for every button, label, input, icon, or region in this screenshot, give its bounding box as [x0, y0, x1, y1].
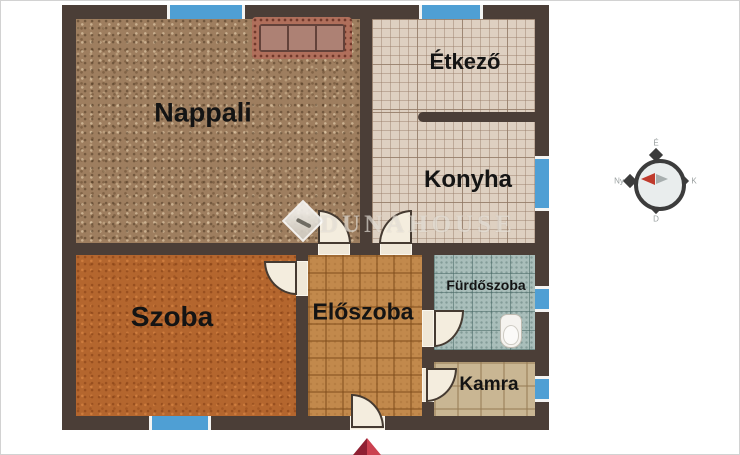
room-floor-szoba — [76, 255, 296, 416]
compass-circle — [634, 159, 686, 211]
sofa-seat — [259, 24, 345, 52]
toilet-icon — [500, 314, 522, 348]
wall-middle-horizontal — [76, 243, 535, 255]
wall-etkezo-konyha — [418, 112, 535, 122]
doorway-konyha-eloszoba — [380, 243, 412, 255]
wall-outer-right — [535, 5, 549, 430]
compass-north-label: É — [653, 139, 658, 148]
doorway-szoba-eloszoba — [296, 261, 308, 296]
compass-needle-tail — [656, 174, 668, 184]
entrance-arrow-icon — [353, 438, 381, 455]
window-szoba-bottom — [149, 416, 211, 430]
room-label-eloszoba: Előszoba — [313, 299, 414, 326]
room-label-nappali: Nappali — [154, 98, 252, 129]
room-label-furdoszoba: Fürdőszoba — [446, 277, 525, 293]
room-label-szoba: Szoba — [131, 301, 213, 333]
compass-needle-icon — [641, 173, 655, 185]
room-floor-eloszoba — [308, 255, 422, 416]
compass-east-label: K — [691, 177, 696, 186]
wall-nappali-etkezo — [360, 19, 372, 243]
compass-south-label: D — [653, 215, 659, 224]
room-label-kamra: Kamra — [459, 374, 518, 396]
compass-rose: É K D Ny — [616, 139, 696, 223]
doorway-furdoszoba — [422, 310, 434, 347]
wall-outer-bottom — [62, 416, 549, 430]
floorplan-image: Nappali Étkező Konyha Szoba Előszoba Für… — [0, 0, 740, 455]
watermark-text: DUNAHOUSE — [320, 211, 516, 239]
wall-furdoszoba-kamra — [422, 350, 535, 362]
sofa-icon — [252, 17, 352, 59]
window-kamra-right — [535, 376, 549, 402]
wall-outer-left — [62, 5, 76, 430]
window-etkezo-top — [419, 5, 483, 19]
window-konyha-right — [535, 156, 549, 211]
doorway-nappali-eloszoba — [318, 243, 350, 255]
window-nappali-top — [167, 5, 245, 19]
window-furdoszoba-right — [535, 286, 549, 312]
room-label-konyha: Konyha — [424, 166, 512, 194]
room-label-etkezo: Étkező — [430, 49, 501, 75]
